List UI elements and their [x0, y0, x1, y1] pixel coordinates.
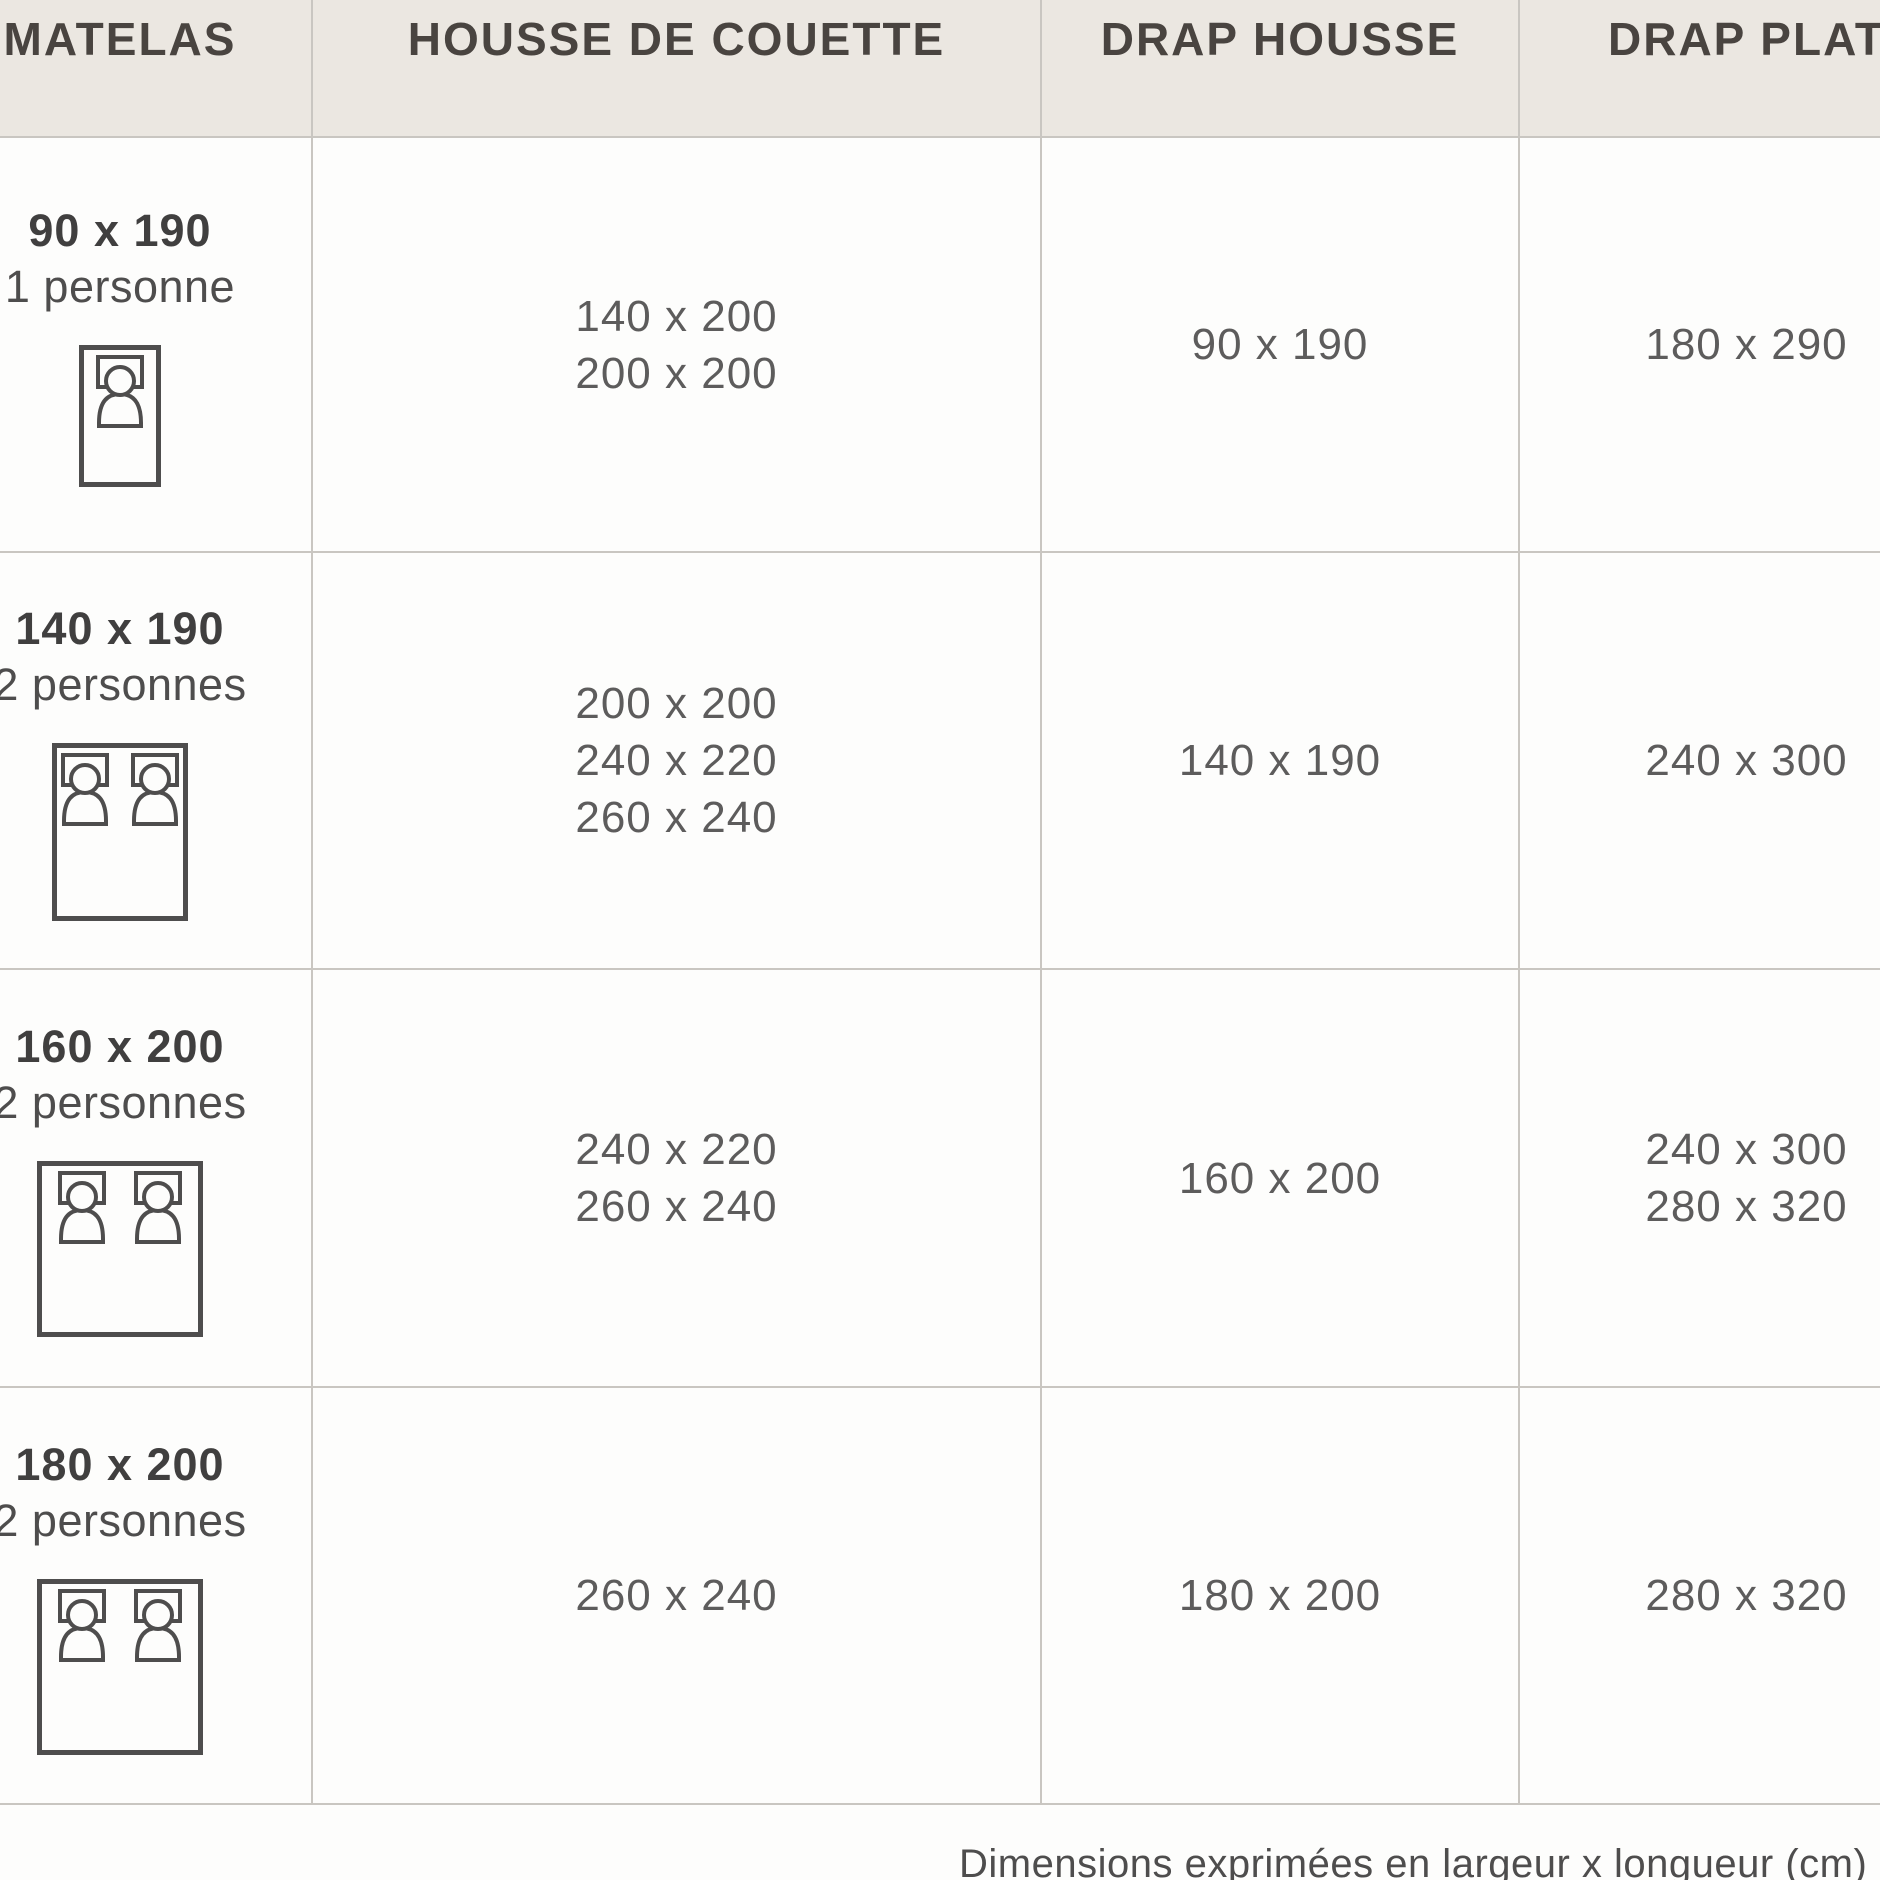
dimensions-footnote: Dimensions exprimées en largeur x longue…	[959, 1842, 1867, 1880]
mattress-size-label: 140 x 190	[15, 601, 224, 657]
bed-1-person-icon	[79, 345, 161, 487]
drap-plat-sizes: 280 x 320	[1520, 1388, 1880, 1805]
table-row-matelas-cell: 180 x 200 2 personnes	[0, 1388, 313, 1805]
mattress-size-label: 180 x 200	[15, 1437, 224, 1493]
drap-housse-sizes: 90 x 190	[1042, 138, 1520, 553]
mattress-persons-label: 2 personnes	[0, 657, 247, 713]
bedding-size-guide: MATELAS HOUSSE DE COUETTE DRAP HOUSSE DR…	[0, 0, 1880, 1880]
table-row-matelas-cell: 160 x 200 2 personnes	[0, 970, 313, 1388]
drap-housse-sizes: 180 x 200	[1042, 1388, 1520, 1805]
table-row-matelas-cell: 90 x 190 1 personne	[0, 138, 313, 553]
drap-plat-sizes: 240 x 300	[1520, 553, 1880, 970]
housse-de-couette-sizes: 200 x 200 240 x 220 260 x 240	[313, 553, 1042, 970]
column-header-matelas: MATELAS	[0, 0, 313, 138]
bed-2-persons-icon	[37, 1161, 203, 1337]
table-row-matelas-cell: 140 x 190 2 personnes	[0, 553, 313, 970]
drap-plat-sizes: 180 x 290	[1520, 138, 1880, 553]
housse-de-couette-sizes: 240 x 220 260 x 240	[313, 970, 1042, 1388]
bed-2-persons-icon	[37, 1579, 203, 1755]
mattress-persons-label: 2 personnes	[0, 1493, 247, 1549]
mattress-persons-label: 2 personnes	[0, 1075, 247, 1131]
mattress-size-label: 160 x 200	[15, 1019, 224, 1075]
size-table: MATELAS HOUSSE DE COUETTE DRAP HOUSSE DR…	[0, 0, 1880, 1805]
drap-housse-sizes: 160 x 200	[1042, 970, 1520, 1388]
drap-housse-sizes: 140 x 190	[1042, 553, 1520, 970]
column-header-drap-plat: DRAP PLAT	[1520, 0, 1880, 138]
mattress-persons-label: 1 personne	[5, 259, 235, 315]
housse-de-couette-sizes: 260 x 240	[313, 1388, 1042, 1805]
mattress-size-label: 90 x 190	[28, 203, 211, 259]
column-header-housse-de-couette: HOUSSE DE COUETTE	[313, 0, 1042, 138]
column-header-drap-housse: DRAP HOUSSE	[1042, 0, 1520, 138]
drap-plat-sizes: 240 x 300 280 x 320	[1520, 970, 1880, 1388]
housse-de-couette-sizes: 140 x 200 200 x 200	[313, 138, 1042, 553]
bed-2-persons-icon	[52, 743, 188, 921]
